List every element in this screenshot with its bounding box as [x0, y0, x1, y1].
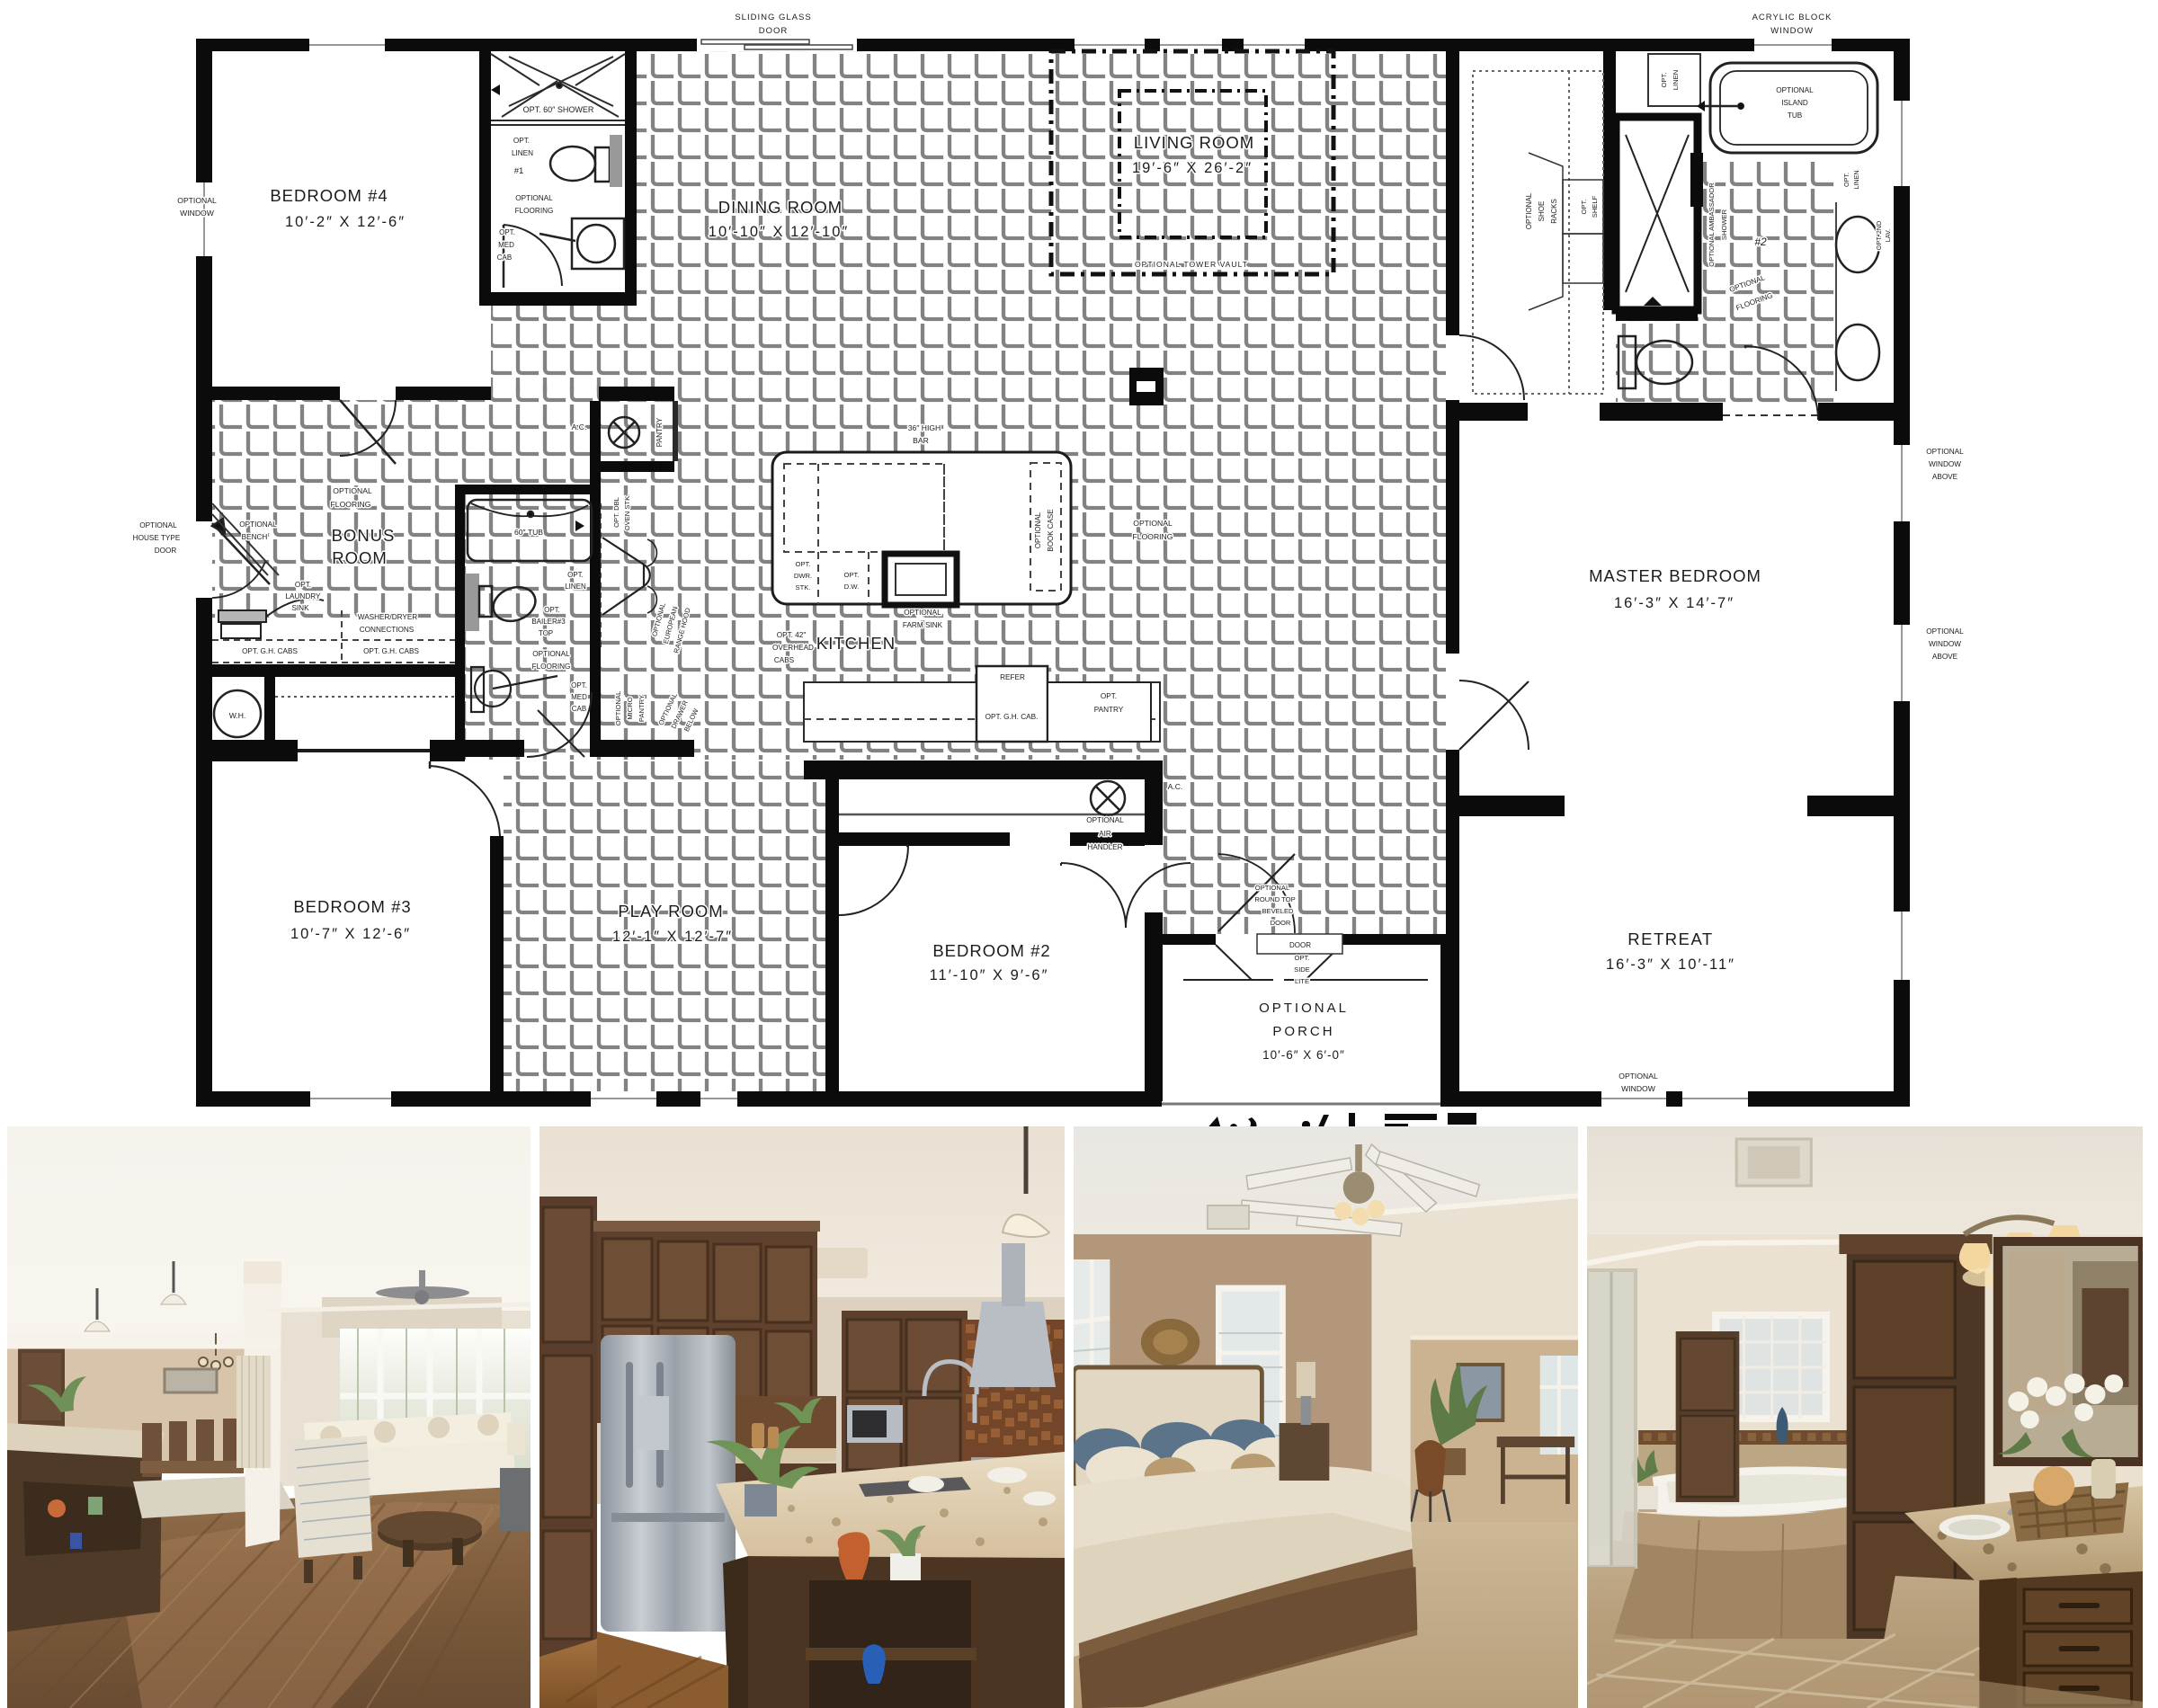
svg-text:WINDOW: WINDOW	[1929, 640, 1961, 648]
svg-text:DOOR: DOOR	[1289, 941, 1311, 949]
svg-text:BENCH: BENCH	[242, 533, 268, 541]
svg-text:OPT.: OPT.	[1660, 73, 1668, 88]
svg-text:WASHER/DRYER: WASHER/DRYER	[358, 613, 418, 621]
svg-text:OPTIONAL: OPTIONAL	[1034, 512, 1042, 548]
svg-text:AIR: AIR	[1099, 830, 1111, 838]
svg-text:OPTIONAL TOWER VAULT: OPTIONAL TOWER VAULT	[1135, 260, 1248, 269]
svg-text:TUB: TUB	[1788, 111, 1803, 120]
svg-text:OPTIONAL: OPTIONAL	[1133, 519, 1173, 528]
svg-text:LINEN: LINEN	[512, 149, 533, 157]
svg-text:PANTRY: PANTRY	[655, 417, 664, 447]
svg-text:HANDLER: HANDLER	[1087, 843, 1122, 851]
svg-text:ROUND TOP: ROUND TOP	[1254, 895, 1295, 903]
svg-text:OPT. 60″ SHOWER: OPT. 60″ SHOWER	[523, 105, 594, 114]
svg-text:A.C.: A.C.	[1168, 782, 1183, 791]
svg-text:RETREAT: RETREAT	[1627, 930, 1713, 948]
svg-text:OPT.: OPT.	[844, 571, 860, 579]
svg-text:CONNECTIONS: CONNECTIONS	[360, 626, 415, 634]
svg-text:OPTIONAL: OPTIONAL	[1776, 86, 1814, 94]
svg-text:BEVELED: BEVELED	[1262, 907, 1294, 915]
svg-text:WINDOW: WINDOW	[1770, 26, 1814, 36]
svg-text:19′-6″ X 26′-2″: 19′-6″ X 26′-2″	[1132, 160, 1253, 176]
svg-text:ABOVE: ABOVE	[1932, 473, 1958, 481]
svg-text:10′-10″ X 12′-10″: 10′-10″ X 12′-10″	[709, 224, 849, 240]
svg-text:#1: #1	[514, 166, 524, 176]
svg-text:36″ HIGH: 36″ HIGH	[908, 423, 941, 432]
svg-text:SHELF: SHELF	[1591, 195, 1599, 218]
svg-text:OPT.: OPT.	[544, 606, 560, 614]
svg-text:PANTRY: PANTRY	[638, 695, 646, 722]
svg-text:WINDOW: WINDOW	[1621, 1084, 1656, 1093]
svg-text:STK.: STK.	[796, 583, 811, 592]
svg-text:OPT. G.H. CABS: OPT. G.H. CABS	[363, 647, 419, 655]
svg-text:OPT. 42″: OPT. 42″	[777, 631, 807, 639]
svg-text:ISLAND: ISLAND	[1781, 99, 1808, 107]
svg-text:OPT.: OPT.	[796, 560, 811, 568]
svg-text:MASTER BEDROOM: MASTER BEDROOM	[1589, 566, 1761, 585]
svg-text:16′-3″ X 10′-11″: 16′-3″ X 10′-11″	[1606, 956, 1735, 973]
svg-text:PANTRY: PANTRY	[1094, 706, 1124, 714]
svg-text:OPT.: OPT.	[513, 137, 530, 145]
svg-text:BEDROOM #4: BEDROOM #4	[270, 186, 388, 205]
svg-text:12′-1″ X 12′-7″: 12′-1″ X 12′-7″	[612, 929, 733, 945]
svg-text:OPTIONAL: OPTIONAL	[515, 194, 553, 202]
svg-text:DOOR: DOOR	[759, 26, 789, 36]
svg-text:SLIDING GLASS: SLIDING GLASS	[735, 13, 811, 22]
svg-text:SHOWER: SHOWER	[1720, 209, 1728, 240]
svg-text:OPT. G.H. CABS: OPT. G.H. CABS	[242, 647, 298, 655]
svg-text:OPTIONAL AMBASSADOR: OPTIONAL AMBASSADOR	[1708, 182, 1716, 267]
svg-text:OPTIONAL: OPTIONAL	[532, 650, 570, 658]
svg-text:LINEN: LINEN	[1852, 170, 1860, 189]
svg-text:OVEN STK.: OVEN STK.	[623, 494, 631, 531]
svg-text:W.H.: W.H.	[229, 711, 246, 720]
svg-text:10′-2″ X 12′-6″: 10′-2″ X 12′-6″	[285, 214, 406, 230]
svg-text:OPTIONAL: OPTIONAL	[1259, 1001, 1349, 1016]
svg-text:FLOORING: FLOORING	[532, 663, 571, 671]
svg-text:ABOVE: ABOVE	[1932, 653, 1958, 661]
svg-text:#2: #2	[1754, 236, 1767, 248]
svg-text:CAB: CAB	[497, 254, 512, 262]
svg-text:RACKS: RACKS	[1550, 199, 1558, 224]
svg-text:ROOM: ROOM	[332, 548, 388, 567]
svg-text:BEDROOM #2: BEDROOM #2	[932, 941, 1050, 960]
svg-text:OPT.: OPT.	[295, 581, 311, 589]
svg-text:OPTIONAL: OPTIONAL	[239, 520, 277, 529]
svg-text:FLOORING: FLOORING	[515, 207, 554, 215]
svg-text:BAILER​#3: BAILER​#3	[531, 618, 566, 626]
svg-text:OPTIONAL: OPTIONAL	[1618, 1072, 1658, 1081]
svg-text:FLOORING: FLOORING	[331, 500, 371, 509]
svg-text:PLAY ROOM: PLAY ROOM	[618, 902, 723, 921]
svg-text:KITCHEN: KITCHEN	[816, 634, 896, 653]
svg-text:ACRYLIC BLOCK: ACRYLIC BLOCK	[1752, 13, 1833, 22]
svg-text:MICRO: MICRO	[626, 697, 634, 719]
svg-text:BONUS: BONUS	[332, 526, 396, 545]
svg-text:SIDE: SIDE	[1294, 965, 1310, 974]
svg-text:OPTIONAL: OPTIONAL	[1926, 627, 1964, 636]
svg-text:OPTIONAL: OPTIONAL	[333, 486, 372, 495]
svg-text:D.W.: D.W.	[844, 583, 859, 591]
svg-text:OPT.: OPT.	[1101, 692, 1117, 700]
svg-text:FARM SINK: FARM SINK	[903, 621, 943, 629]
svg-text:A.C.: A.C.	[572, 423, 587, 431]
svg-text:FLOORING: FLOORING	[1133, 532, 1173, 541]
svg-text:OPT.: OPT.	[567, 571, 584, 579]
svg-text:OPTIONAL: OPTIONAL	[1525, 192, 1533, 229]
svg-text:OPTIONAL: OPTIONAL	[614, 691, 622, 725]
svg-text:DWR.: DWR.	[794, 572, 812, 580]
svg-text:WINDOW: WINDOW	[180, 209, 215, 218]
svg-text:OPTIONAL: OPTIONAL	[1255, 884, 1289, 892]
svg-text:DOOR: DOOR	[155, 547, 177, 555]
svg-text:OPT. 2ND: OPT. 2ND	[1875, 221, 1883, 250]
svg-text:OPT.: OPT.	[1580, 200, 1588, 215]
svg-text:OPT. G.H. CAB.: OPT. G.H. CAB.	[985, 713, 1039, 721]
svg-text:OPTIONAL: OPTIONAL	[904, 609, 941, 617]
svg-text:OPT.: OPT.	[1295, 954, 1310, 962]
svg-text:SINK: SINK	[291, 604, 309, 612]
svg-text:HOUSE TYPE: HOUSE TYPE	[133, 534, 181, 542]
svg-text:LAUNDRY: LAUNDRY	[286, 592, 322, 600]
svg-text:OPT.: OPT.	[499, 228, 515, 236]
svg-text:11′-10″ X 9′-6″: 11′-10″ X 9′-6″	[930, 967, 1049, 983]
svg-text:TOP: TOP	[539, 629, 553, 637]
svg-text:10′-7″ X 12′-6″: 10′-7″ X 12′-6″	[290, 926, 411, 942]
svg-text:WINDOW: WINDOW	[1929, 460, 1961, 468]
svg-text:16′-3″ X 14′-7″: 16′-3″ X 14′-7″	[1614, 595, 1734, 611]
svg-text:LINEN: LINEN	[1672, 70, 1680, 90]
svg-text:OPT.: OPT.	[571, 681, 587, 689]
svg-text:MED: MED	[571, 693, 587, 701]
svg-text:LINEN: LINEN	[565, 583, 586, 591]
svg-text:OPTIONAL: OPTIONAL	[1086, 816, 1124, 824]
svg-text:60″ TUB: 60″ TUB	[514, 528, 543, 537]
svg-text:OVERHEAD: OVERHEAD	[772, 644, 814, 652]
svg-text:CABS: CABS	[774, 656, 795, 664]
svg-text:LAV.: LAV.	[1884, 229, 1892, 242]
svg-text:BOOK CASE: BOOK CASE	[1047, 509, 1055, 551]
svg-text:10′-6″ X 6′-0″: 10′-6″ X 6′-0″	[1262, 1048, 1345, 1062]
svg-text:LIVING ROOM: LIVING ROOM	[1134, 133, 1254, 152]
svg-text:BEDROOM #3: BEDROOM #3	[293, 897, 411, 916]
svg-text:MED: MED	[498, 241, 514, 249]
svg-text:OPTIONAL: OPTIONAL	[139, 521, 177, 529]
svg-text:CAB: CAB	[572, 705, 586, 713]
svg-text:PORCH: PORCH	[1272, 1024, 1334, 1039]
svg-text:OPTIONAL: OPTIONAL	[177, 196, 217, 205]
svg-text:DOOR: DOOR	[1271, 919, 1291, 927]
svg-text:DINING ROOM: DINING ROOM	[718, 198, 843, 217]
svg-text:BAR: BAR	[913, 436, 929, 445]
svg-text:OPT.: OPT.	[1842, 173, 1850, 187]
svg-text:LITE: LITE	[1295, 977, 1309, 985]
svg-text:SHOE: SHOE	[1538, 201, 1546, 222]
svg-text:OPT. DBL: OPT. DBL	[612, 497, 620, 528]
svg-text:OPTIONAL: OPTIONAL	[1926, 448, 1964, 456]
svg-text:REFER: REFER	[1000, 673, 1025, 681]
